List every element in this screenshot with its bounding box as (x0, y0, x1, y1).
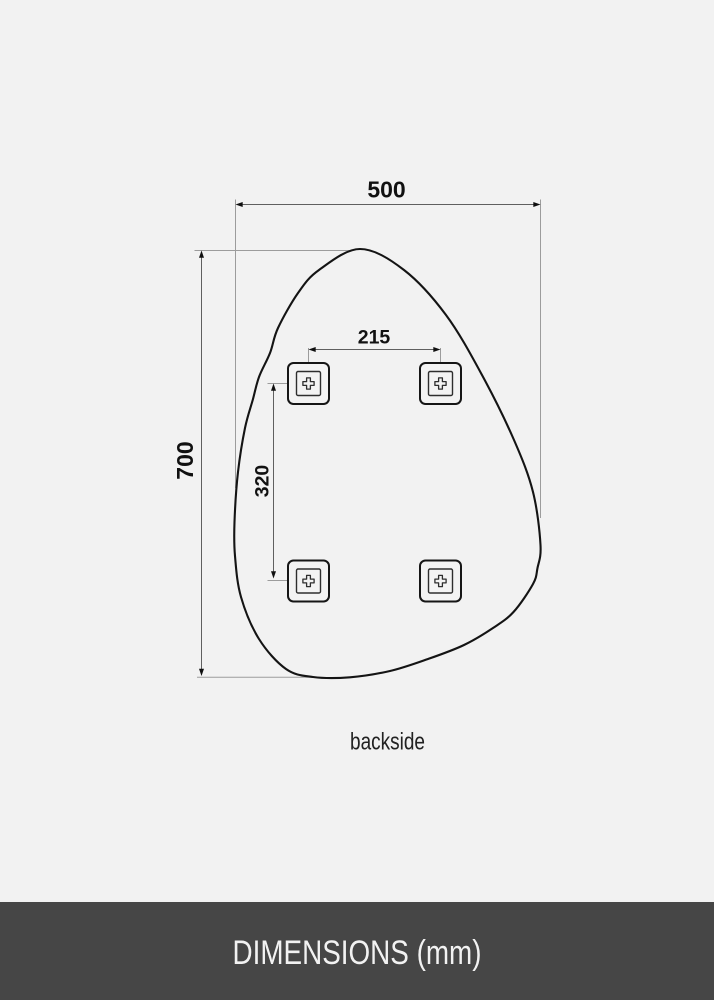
svg-text:backside: backside (350, 729, 425, 756)
svg-text:700: 700 (172, 441, 198, 479)
svg-text:500: 500 (367, 177, 405, 203)
svg-text:320: 320 (252, 465, 274, 498)
svg-text:DIMENSIONS (mm): DIMENSIONS (mm) (233, 934, 482, 972)
svg-text:215: 215 (358, 327, 391, 349)
